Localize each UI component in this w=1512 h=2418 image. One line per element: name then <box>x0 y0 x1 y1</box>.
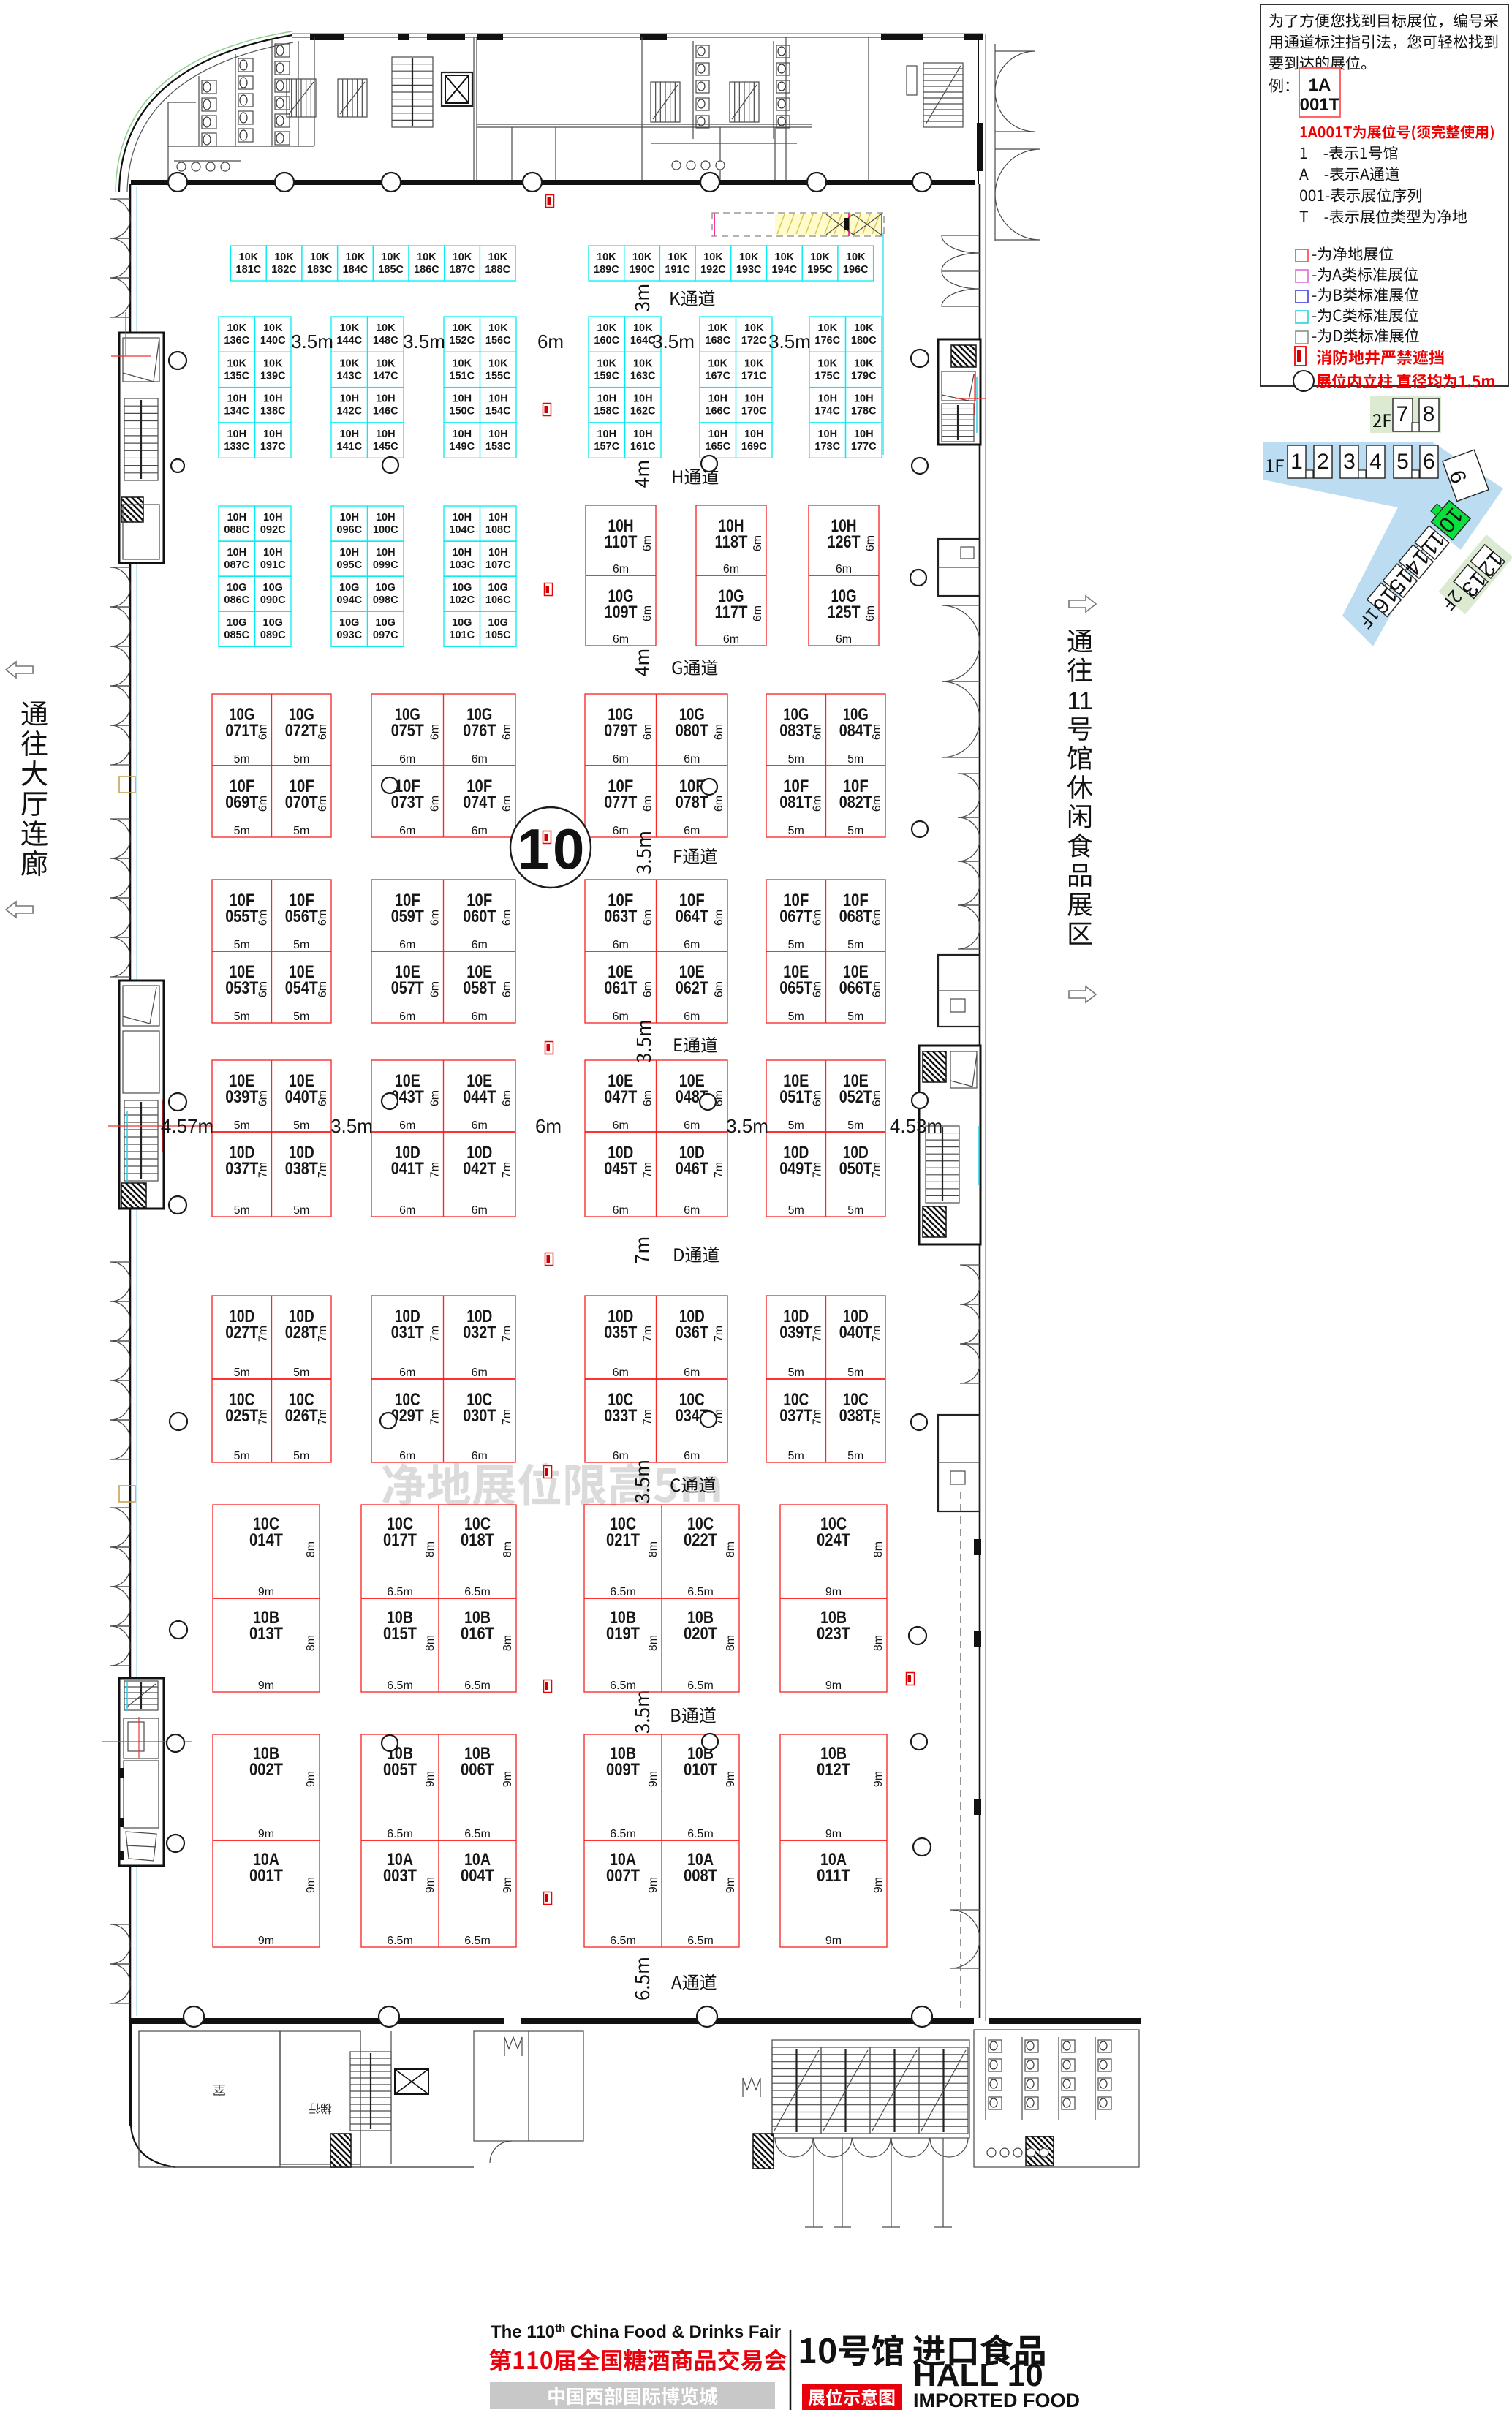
svg-text:10K: 10K <box>376 322 396 334</box>
svg-text:133C: 133C <box>224 441 249 453</box>
svg-text:8m: 8m <box>424 1635 436 1651</box>
svg-text:10G: 10G <box>227 582 246 594</box>
svg-text:6m: 6m <box>812 724 824 740</box>
svg-text:9m: 9m <box>825 1828 842 1840</box>
svg-text:6m: 6m <box>613 1119 629 1132</box>
svg-text:136C: 136C <box>224 335 249 347</box>
svg-text:6m: 6m <box>613 1010 629 1023</box>
svg-text:7m: 7m <box>642 1409 654 1425</box>
svg-text:143C: 143C <box>336 370 362 382</box>
svg-text:9m: 9m <box>258 1586 274 1598</box>
svg-text:081T: 081T <box>779 793 812 812</box>
svg-text:6m: 6m <box>537 330 564 352</box>
svg-text:6m: 6m <box>429 981 442 997</box>
svg-text:3: 3 <box>1343 450 1356 474</box>
svg-text:9m: 9m <box>872 1771 885 1787</box>
svg-text:126T: 126T <box>828 532 861 552</box>
svg-text:6m: 6m <box>535 1115 562 1137</box>
svg-text:10H: 10H <box>597 393 616 405</box>
svg-text:104C: 104C <box>449 524 475 536</box>
svg-text:6m: 6m <box>501 1090 513 1106</box>
svg-text:5m: 5m <box>788 1010 804 1023</box>
svg-text:9m: 9m <box>725 1877 737 1893</box>
svg-text:6m: 6m <box>613 939 629 951</box>
svg-text:10H: 10H <box>227 428 246 440</box>
svg-text:039T: 039T <box>779 1323 812 1342</box>
svg-text:10K: 10K <box>744 322 764 334</box>
svg-text:6.5m: 6.5m <box>464 1935 491 1947</box>
svg-text:3.5m: 3.5m <box>403 330 445 352</box>
svg-text:082T: 082T <box>839 793 872 812</box>
svg-text:6m: 6m <box>399 753 415 766</box>
svg-text:162C: 162C <box>630 406 656 418</box>
svg-text:10K: 10K <box>339 322 359 334</box>
svg-text:100C: 100C <box>373 524 398 536</box>
svg-text:6m: 6m <box>642 981 654 997</box>
svg-text:1: 1 <box>1290 450 1303 474</box>
svg-text:6m: 6m <box>257 796 270 812</box>
svg-text:025T: 025T <box>225 1406 258 1426</box>
svg-text:10H: 10H <box>488 512 508 524</box>
svg-text:9m: 9m <box>502 1877 514 1893</box>
svg-text:10K: 10K <box>376 358 396 369</box>
svg-text:6m: 6m <box>501 724 513 740</box>
svg-text:5m: 5m <box>788 939 804 951</box>
svg-text:156C: 156C <box>485 335 511 347</box>
svg-text:6m: 6m <box>472 939 488 951</box>
svg-text:102C: 102C <box>449 594 475 606</box>
svg-text:012T: 012T <box>817 1760 850 1780</box>
svg-text:169C: 169C <box>741 441 767 453</box>
svg-text:013T: 013T <box>249 1624 283 1644</box>
svg-text:105C: 105C <box>485 630 511 641</box>
svg-text:037T: 037T <box>225 1159 258 1179</box>
svg-text:135C: 135C <box>224 370 249 382</box>
svg-text:140C: 140C <box>260 335 286 347</box>
svg-text:9m: 9m <box>502 1771 514 1787</box>
svg-text:037T: 037T <box>779 1406 812 1426</box>
svg-text:139C: 139C <box>260 370 286 382</box>
svg-text:10K: 10K <box>452 358 472 369</box>
svg-text:8m: 8m <box>725 1635 737 1651</box>
svg-text:062T: 062T <box>676 978 708 998</box>
svg-text:7m: 7m <box>642 1326 654 1342</box>
svg-text:6m: 6m <box>752 605 764 621</box>
svg-text:178C: 178C <box>851 406 877 418</box>
svg-text:10H: 10H <box>854 393 874 405</box>
svg-text:10K: 10K <box>633 358 653 369</box>
svg-text:6m: 6m <box>684 1204 700 1217</box>
svg-text:8m: 8m <box>424 1541 436 1557</box>
svg-text:10K: 10K <box>417 252 436 263</box>
svg-text:184C: 184C <box>343 264 368 276</box>
svg-text:10K: 10K <box>239 252 259 263</box>
svg-text:6.5m: 6.5m <box>610 1680 636 1692</box>
svg-text:8m: 8m <box>872 1635 885 1651</box>
svg-text:9m: 9m <box>825 1586 842 1598</box>
svg-text:6m: 6m <box>613 1204 629 1217</box>
svg-text:030T: 030T <box>463 1406 496 1426</box>
svg-text:188C: 188C <box>485 264 510 276</box>
svg-text:9m: 9m <box>258 1680 274 1692</box>
svg-text:10K: 10K <box>310 252 330 263</box>
svg-text:181C: 181C <box>236 264 262 276</box>
svg-text:033T: 033T <box>604 1406 637 1426</box>
svg-text:7m: 7m <box>429 1326 442 1342</box>
svg-text:059T: 059T <box>391 907 424 926</box>
svg-text:6m: 6m <box>684 1450 700 1462</box>
svg-text:6m: 6m <box>472 1204 488 1217</box>
svg-text:6m: 6m <box>871 796 883 812</box>
svg-text:6m: 6m <box>472 1119 488 1132</box>
svg-text:4: 4 <box>1369 450 1382 474</box>
svg-text:040T: 040T <box>285 1087 318 1107</box>
svg-text:10H: 10H <box>227 393 246 405</box>
svg-text:8m: 8m <box>872 1541 885 1557</box>
svg-text:6m: 6m <box>317 724 329 740</box>
svg-text:9m: 9m <box>258 1935 274 1947</box>
svg-text:10K: 10K <box>453 252 472 263</box>
svg-text:6.5m: 6.5m <box>387 1586 413 1598</box>
svg-text:6m: 6m <box>641 535 654 551</box>
svg-text:10K: 10K <box>339 358 359 369</box>
svg-text:6m: 6m <box>684 1119 700 1132</box>
svg-text:10K: 10K <box>708 322 727 334</box>
svg-text:026T: 026T <box>285 1406 318 1426</box>
svg-text:9m: 9m <box>872 1877 885 1893</box>
svg-text:10H: 10H <box>376 428 396 440</box>
svg-text:019T: 019T <box>606 1624 640 1644</box>
svg-text:6m: 6m <box>399 1450 415 1462</box>
svg-text:038T: 038T <box>839 1406 872 1426</box>
svg-text:087C: 087C <box>224 559 249 571</box>
svg-text:10H: 10H <box>452 547 472 559</box>
svg-text:045T: 045T <box>604 1159 637 1179</box>
svg-text:10K: 10K <box>227 358 246 369</box>
svg-text:160C: 160C <box>594 335 619 347</box>
svg-text:10G: 10G <box>376 617 396 629</box>
svg-text:001T: 001T <box>1300 95 1340 115</box>
svg-text:6.5m: 6.5m <box>687 1586 714 1598</box>
svg-text:6.5m: 6.5m <box>464 1586 491 1598</box>
svg-text:7m: 7m <box>317 1326 329 1342</box>
svg-text:6m: 6m <box>429 724 442 740</box>
svg-text:10K: 10K <box>597 322 616 334</box>
svg-text:6m: 6m <box>684 939 700 951</box>
svg-text:089C: 089C <box>260 630 286 641</box>
svg-text:6m: 6m <box>429 910 442 926</box>
svg-text:6m: 6m <box>317 981 329 997</box>
svg-text:5m: 5m <box>234 753 250 766</box>
svg-text:7m: 7m <box>257 1326 270 1342</box>
svg-text:191C: 191C <box>665 264 690 276</box>
svg-text:017T: 017T <box>383 1530 417 1550</box>
svg-text:6m: 6m <box>641 605 654 621</box>
svg-text:055T: 055T <box>225 907 258 926</box>
svg-text:10G: 10G <box>452 582 472 594</box>
svg-text:10G: 10G <box>339 582 359 594</box>
svg-text:9m: 9m <box>825 1680 842 1692</box>
svg-text:10H: 10H <box>488 547 508 559</box>
svg-text:6m: 6m <box>723 633 739 646</box>
svg-text:098C: 098C <box>373 594 398 606</box>
svg-text:005T: 005T <box>383 1760 417 1780</box>
svg-text:173C: 173C <box>814 441 840 453</box>
svg-text:5m: 5m <box>293 753 309 766</box>
svg-text:168C: 168C <box>705 335 730 347</box>
svg-text:4.53m: 4.53m <box>890 1115 942 1137</box>
svg-text:182C: 182C <box>271 264 297 276</box>
svg-text:6.5m: 6.5m <box>464 1828 491 1840</box>
svg-text:7m: 7m <box>317 1162 329 1178</box>
svg-text:10K: 10K <box>488 358 508 369</box>
svg-text:10K: 10K <box>817 358 837 369</box>
svg-text:5m: 5m <box>788 1119 804 1132</box>
svg-text:020T: 020T <box>684 1624 717 1644</box>
svg-text:103C: 103C <box>449 559 475 571</box>
svg-text:180C: 180C <box>851 335 877 347</box>
svg-text:5m: 5m <box>234 825 250 837</box>
svg-text:4.57m: 4.57m <box>161 1115 213 1137</box>
svg-text:10K: 10K <box>488 322 508 334</box>
svg-text:9m: 9m <box>424 1771 436 1787</box>
svg-text:7m: 7m <box>871 1162 883 1178</box>
svg-text:150C: 150C <box>449 406 475 418</box>
svg-text:10H: 10H <box>376 512 396 524</box>
svg-text:058T: 058T <box>463 978 496 998</box>
svg-text:166C: 166C <box>705 406 730 418</box>
svg-text:153C: 153C <box>485 441 511 453</box>
svg-text:8m: 8m <box>725 1541 737 1557</box>
svg-text:167C: 167C <box>705 370 730 382</box>
svg-text:137C: 137C <box>260 441 286 453</box>
svg-text:195C: 195C <box>807 264 833 276</box>
svg-text:040T: 040T <box>839 1323 872 1342</box>
svg-text:108C: 108C <box>485 524 511 536</box>
svg-text:8m: 8m <box>305 1635 317 1651</box>
svg-text:5m: 5m <box>234 1119 250 1132</box>
svg-text:093C: 093C <box>336 630 362 641</box>
svg-text:002T: 002T <box>249 1760 283 1780</box>
svg-text:088C: 088C <box>224 524 249 536</box>
svg-text:5m: 5m <box>293 1010 309 1023</box>
svg-text:3.5m: 3.5m <box>768 330 811 352</box>
svg-text:6m: 6m <box>317 910 329 926</box>
svg-text:050T: 050T <box>839 1159 872 1179</box>
svg-text:6m: 6m <box>399 939 415 951</box>
svg-text:076T: 076T <box>463 721 496 741</box>
svg-text:097C: 097C <box>373 630 398 641</box>
svg-text:10H: 10H <box>817 393 837 405</box>
svg-text:078T: 078T <box>676 793 708 812</box>
svg-text:073T: 073T <box>391 793 424 812</box>
svg-text:IMPORTED FOOD: IMPORTED FOOD <box>913 2389 1080 2411</box>
svg-text:6m: 6m <box>684 753 700 766</box>
svg-text:7m: 7m <box>429 1409 442 1425</box>
svg-text:085C: 085C <box>224 630 249 641</box>
svg-text:7m: 7m <box>501 1409 513 1425</box>
svg-text:7m: 7m <box>812 1326 824 1342</box>
svg-text:163C: 163C <box>630 370 656 382</box>
svg-text:6m: 6m <box>257 1090 270 1106</box>
svg-text:7m: 7m <box>257 1162 270 1178</box>
svg-text:7m: 7m <box>713 1162 725 1178</box>
svg-text:9m: 9m <box>647 1771 659 1787</box>
svg-text:6.5m: 6.5m <box>610 1935 636 1947</box>
svg-text:031T: 031T <box>391 1323 424 1342</box>
svg-text:117T: 117T <box>715 602 748 622</box>
svg-text:5m: 5m <box>847 939 863 951</box>
svg-text:6m: 6m <box>257 724 270 740</box>
svg-text:038T: 038T <box>285 1159 318 1179</box>
svg-text:5m: 5m <box>788 753 804 766</box>
svg-text:6.5m: 6.5m <box>387 1680 413 1692</box>
svg-text:6m: 6m <box>684 1010 700 1023</box>
svg-text:052T: 052T <box>839 1087 872 1107</box>
svg-text:044T: 044T <box>463 1087 496 1107</box>
svg-text:008T: 008T <box>684 1866 717 1886</box>
svg-text:8m: 8m <box>647 1635 659 1651</box>
svg-text:6m: 6m <box>317 796 329 812</box>
svg-text:004T: 004T <box>461 1866 494 1886</box>
svg-text:155C: 155C <box>485 370 511 382</box>
svg-text:6m: 6m <box>613 633 629 646</box>
svg-text:091C: 091C <box>260 559 286 571</box>
svg-text:10K: 10K <box>381 252 401 263</box>
svg-text:141C: 141C <box>336 441 362 453</box>
svg-text:10H: 10H <box>339 428 359 440</box>
svg-text:069T: 069T <box>225 793 258 812</box>
svg-text:10G: 10G <box>263 617 283 629</box>
svg-text:6m: 6m <box>642 1090 654 1106</box>
svg-text:6m: 6m <box>399 1367 415 1379</box>
svg-text:10H: 10H <box>263 547 283 559</box>
svg-text:066T: 066T <box>839 978 872 998</box>
svg-text:101C: 101C <box>449 630 475 641</box>
svg-text:092C: 092C <box>260 524 286 536</box>
svg-text:5m: 5m <box>788 825 804 837</box>
svg-text:5m: 5m <box>847 753 863 766</box>
svg-text:5m: 5m <box>293 1204 309 1217</box>
svg-text:174C: 174C <box>814 406 840 418</box>
svg-text:6m: 6m <box>713 724 725 740</box>
svg-text:6m: 6m <box>257 981 270 997</box>
svg-text:10K: 10K <box>263 322 283 334</box>
svg-text:6m: 6m <box>399 1010 415 1023</box>
svg-text:6.5m: 6.5m <box>687 1828 714 1840</box>
svg-text:6m: 6m <box>613 825 629 837</box>
svg-text:6m: 6m <box>613 563 629 575</box>
svg-text:175C: 175C <box>814 370 840 382</box>
svg-text:10H: 10H <box>708 428 727 440</box>
svg-text:157C: 157C <box>594 441 619 453</box>
svg-text:7: 7 <box>1396 402 1409 426</box>
svg-text:10H: 10H <box>854 428 874 440</box>
svg-text:5m: 5m <box>293 825 309 837</box>
svg-text:003T: 003T <box>383 1866 417 1886</box>
svg-text:6m: 6m <box>864 605 877 621</box>
svg-text:011T: 011T <box>817 1866 850 1886</box>
svg-text:10G: 10G <box>227 617 246 629</box>
svg-text:6m: 6m <box>613 1367 629 1379</box>
svg-text:171C: 171C <box>741 370 767 382</box>
svg-text:10H: 10H <box>708 393 727 405</box>
svg-text:193C: 193C <box>736 264 762 276</box>
svg-text:3.5m: 3.5m <box>652 330 695 352</box>
svg-text:10H: 10H <box>817 428 837 440</box>
svg-text:056T: 056T <box>285 907 318 926</box>
svg-text:10H: 10H <box>263 428 283 440</box>
svg-text:146C: 146C <box>373 406 398 418</box>
svg-text:10G: 10G <box>376 582 396 594</box>
svg-text:106C: 106C <box>485 594 511 606</box>
svg-text:7m: 7m <box>501 1162 513 1178</box>
svg-text:035T: 035T <box>604 1323 637 1342</box>
svg-text:10K: 10K <box>854 322 874 334</box>
svg-text:118T: 118T <box>715 532 748 552</box>
svg-text:071T: 071T <box>225 721 258 741</box>
svg-text:065T: 065T <box>779 978 812 998</box>
svg-text:028T: 028T <box>285 1323 318 1342</box>
svg-text:10H: 10H <box>633 428 653 440</box>
svg-text:5m: 5m <box>847 1367 863 1379</box>
svg-text:060T: 060T <box>463 907 496 926</box>
svg-text:5m: 5m <box>234 1010 250 1023</box>
svg-text:10H: 10H <box>376 393 396 405</box>
svg-text:041T: 041T <box>391 1159 424 1179</box>
svg-text:086C: 086C <box>224 594 249 606</box>
svg-text:5m: 5m <box>234 1367 250 1379</box>
svg-text:6m: 6m <box>871 981 883 997</box>
svg-text:023T: 023T <box>817 1624 850 1644</box>
svg-text:057T: 057T <box>391 978 424 998</box>
svg-text:10K: 10K <box>597 358 616 369</box>
svg-text:001T: 001T <box>249 1866 283 1886</box>
svg-text:5m: 5m <box>293 939 309 951</box>
svg-text:176C: 176C <box>814 335 840 347</box>
svg-text:10K: 10K <box>346 252 366 263</box>
svg-text:10H: 10H <box>744 393 764 405</box>
svg-text:077T: 077T <box>604 793 637 812</box>
svg-text:147C: 147C <box>373 370 398 382</box>
svg-text:6m: 6m <box>501 910 513 926</box>
svg-text:6.5m: 6.5m <box>687 1935 714 1947</box>
svg-text:3.5m: 3.5m <box>726 1115 768 1137</box>
svg-text:6.5m: 6.5m <box>687 1680 714 1692</box>
svg-text:5m: 5m <box>847 1450 863 1462</box>
svg-text:9m: 9m <box>305 1771 317 1787</box>
svg-text:144C: 144C <box>336 335 362 347</box>
svg-text:3.5m: 3.5m <box>330 1115 373 1137</box>
svg-text:8m: 8m <box>647 1541 659 1557</box>
svg-text:6m: 6m <box>429 1090 442 1106</box>
svg-text:006T: 006T <box>461 1760 494 1780</box>
svg-text:046T: 046T <box>676 1159 708 1179</box>
svg-text:10K: 10K <box>744 358 764 369</box>
svg-text:190C: 190C <box>630 264 655 276</box>
svg-text:074T: 074T <box>463 793 496 812</box>
svg-text:134C: 134C <box>224 406 249 418</box>
svg-text:6.5m: 6.5m <box>464 1680 491 1692</box>
svg-text:6m: 6m <box>472 1010 488 1023</box>
svg-text:094C: 094C <box>336 594 362 606</box>
svg-text:6m: 6m <box>871 1090 883 1106</box>
svg-text:145C: 145C <box>373 441 398 453</box>
svg-text:5m: 5m <box>847 1010 863 1023</box>
svg-text:10H: 10H <box>339 512 359 524</box>
svg-text:6m: 6m <box>836 633 852 646</box>
svg-text:6: 6 <box>1423 450 1435 474</box>
